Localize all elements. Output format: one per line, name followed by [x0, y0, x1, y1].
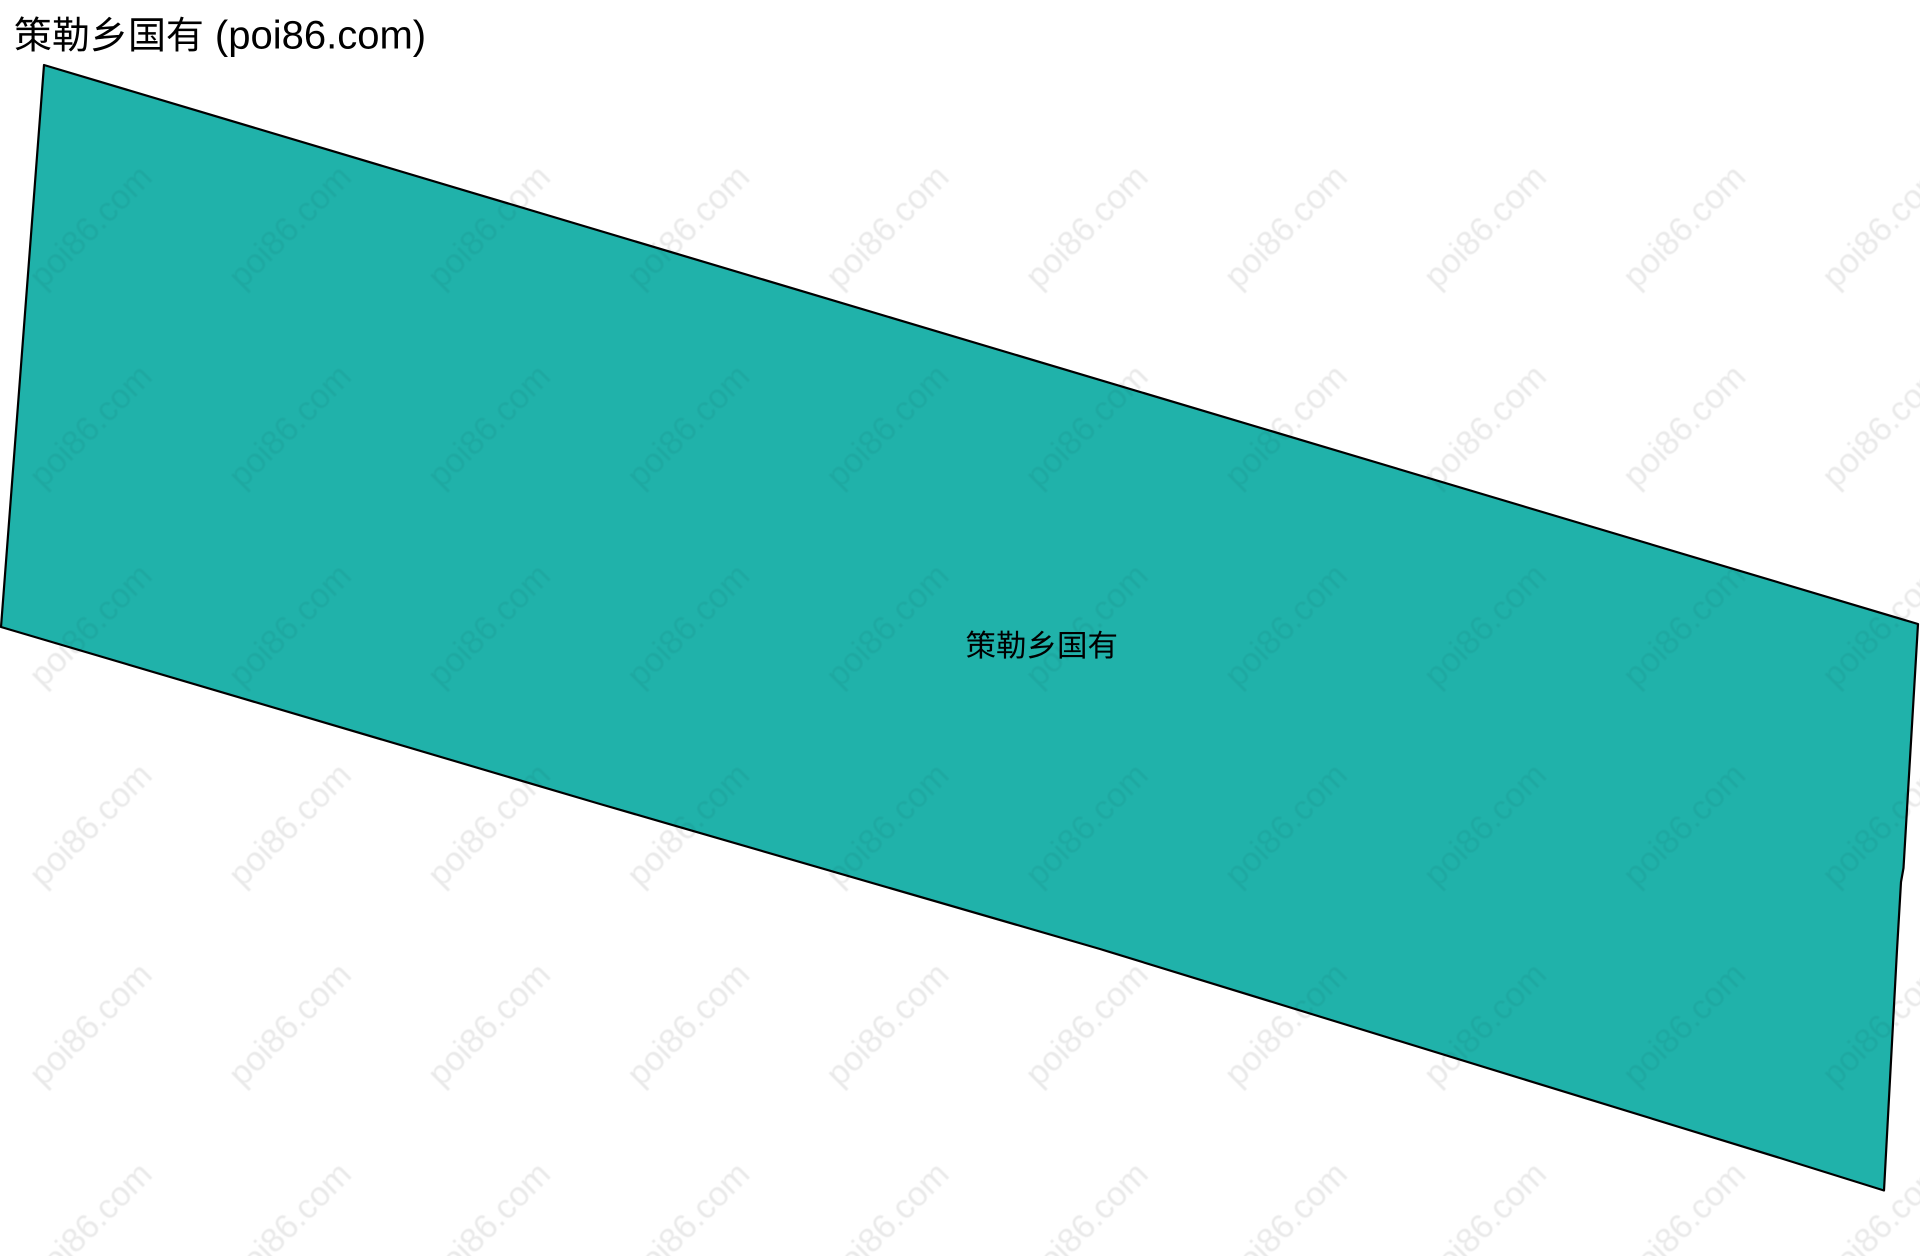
svg-text:poi86.com: poi86.com: [22, 1155, 160, 1256]
svg-text:poi86.com: poi86.com: [1416, 1155, 1554, 1256]
svg-text:poi86.com: poi86.com: [819, 955, 957, 1093]
svg-text:poi86.com: poi86.com: [420, 1155, 558, 1256]
svg-text:poi86.com: poi86.com: [1815, 158, 1920, 296]
svg-text:poi86.com: poi86.com: [619, 955, 757, 1093]
svg-text:poi86.com: poi86.com: [1615, 158, 1753, 296]
svg-text:poi86.com: poi86.com: [1615, 357, 1753, 495]
svg-text:poi86.com: poi86.com: [221, 756, 359, 894]
svg-text:poi86.com: poi86.com: [1416, 357, 1554, 495]
svg-text:poi86.com: poi86.com: [1018, 1155, 1156, 1256]
svg-text:poi86.com: poi86.com: [221, 955, 359, 1093]
svg-text:poi86.com: poi86.com: [1815, 357, 1920, 495]
svg-text:poi86.com: poi86.com: [1615, 1155, 1753, 1256]
svg-text:poi86.com: poi86.com: [1217, 1155, 1355, 1256]
svg-text:poi86.com: poi86.com: [1217, 158, 1355, 296]
svg-text:poi86.com: poi86.com: [221, 1155, 359, 1256]
svg-text:poi86.com: poi86.com: [819, 1155, 957, 1256]
svg-text:poi86.com: poi86.com: [1018, 955, 1156, 1093]
svg-text:poi86.com: poi86.com: [420, 955, 558, 1093]
svg-text:poi86.com: poi86.com: [1416, 158, 1554, 296]
svg-text:poi86.com: poi86.com: [619, 1155, 757, 1256]
svg-text:poi86.com: poi86.com: [22, 955, 160, 1093]
svg-text:(poi86.com): (poi86.com): [204, 14, 426, 58]
svg-text:poi86.com: poi86.com: [819, 158, 957, 296]
svg-text:poi86.com: poi86.com: [22, 756, 160, 894]
svg-text:poi86.com: poi86.com: [1018, 158, 1156, 296]
